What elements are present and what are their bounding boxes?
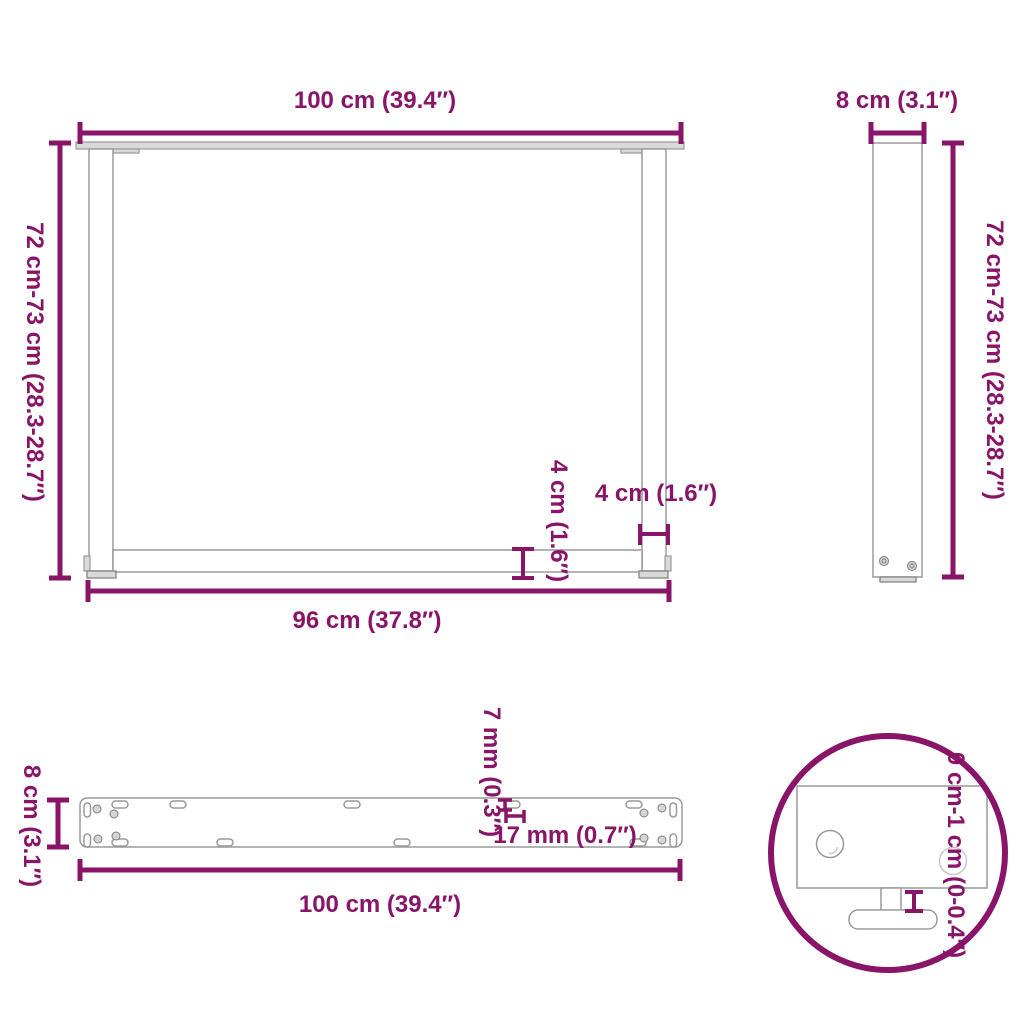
front-right-foot	[639, 571, 668, 578]
detail-view: 0 cm-1 cm (0-0.4″)	[771, 736, 1005, 970]
dimension-diagram-page: 100 cm (39.4″) 72 cm-73 cm (28.3-28.7″) …	[0, 0, 1024, 1024]
front-height-label: 72 cm-73 cm (28.3-28.7″)	[21, 222, 48, 502]
front-leg-width-label: 4 cm (1.6″)	[595, 480, 717, 507]
front-right-foot-tab	[665, 556, 671, 571]
front-left-foot	[87, 571, 116, 578]
side-base-tab	[880, 577, 916, 582]
top-slot-horizontal	[170, 801, 186, 808]
top-view: 8 cm (3.1″) 100 cm (39.4″) 7 mm (0.3″) 1…	[18, 707, 682, 918]
front-right-leg	[642, 149, 666, 571]
side-width-dim-line	[871, 122, 924, 144]
top-length-label: 100 cm (39.4″)	[299, 891, 461, 918]
top-depth-dim-line	[47, 800, 69, 847]
front-view: 100 cm (39.4″) 72 cm-73 cm (28.3-28.7″) …	[21, 87, 717, 634]
top-slot-vertical	[84, 834, 91, 847]
top-slot-vertical	[670, 803, 677, 817]
front-bottom-width-dim-line	[88, 580, 669, 602]
front-top-plate	[76, 142, 684, 149]
top-slot-width-label: 7 mm (0.3″)	[478, 707, 505, 837]
detail-adjustment-label: 0 cm-1 cm (0-0.4″)	[942, 752, 969, 958]
top-length-dim-line	[80, 859, 680, 881]
detail-foot-base	[849, 910, 937, 929]
detail-foot-stem	[881, 888, 901, 912]
front-height-dim-line	[49, 143, 71, 578]
side-view: 8 cm (3.1″) 72 cm-73 cm (28.3-28.7″)	[836, 87, 1008, 582]
side-height-dim-line	[942, 143, 964, 577]
top-slot-horizontal	[626, 801, 642, 808]
side-height-label: 72 cm-73 cm (28.3-28.7″)	[981, 220, 1008, 500]
top-depth-label: 8 cm (3.1″)	[18, 765, 45, 887]
top-slot-length-label: 17 mm (0.7″)	[493, 822, 637, 849]
front-width-dim-line	[80, 122, 681, 144]
side-screw-left	[880, 557, 889, 566]
top-slot-horizontal	[217, 839, 233, 846]
front-left-foot-tab	[84, 556, 90, 571]
top-slot-horizontal	[394, 839, 410, 846]
front-crossbar-height-label: 4 cm (1.6″)	[545, 460, 572, 582]
side-leg	[873, 143, 922, 577]
top-screw	[94, 835, 102, 843]
top-screw	[112, 832, 120, 840]
front-left-bracket	[113, 149, 139, 153]
top-screw	[658, 804, 666, 812]
front-left-leg	[89, 149, 113, 571]
top-slot-horizontal	[112, 801, 128, 808]
top-screw	[93, 805, 101, 813]
top-screw	[658, 836, 666, 844]
top-slot-vertical	[670, 834, 677, 847]
top-slot-vertical	[84, 803, 91, 817]
front-width-label: 100 cm (39.4″)	[294, 87, 456, 114]
side-width-label: 8 cm (3.1″)	[836, 87, 958, 114]
side-screw-right	[908, 562, 917, 571]
top-slot-horizontal	[344, 801, 360, 808]
top-screw	[640, 809, 648, 817]
top-screw	[640, 834, 648, 842]
front-bottom-width-label: 96 cm (37.8″)	[293, 607, 442, 634]
top-screw	[110, 810, 118, 818]
dimension-diagram: 100 cm (39.4″) 72 cm-73 cm (28.3-28.7″) …	[0, 0, 1024, 1024]
